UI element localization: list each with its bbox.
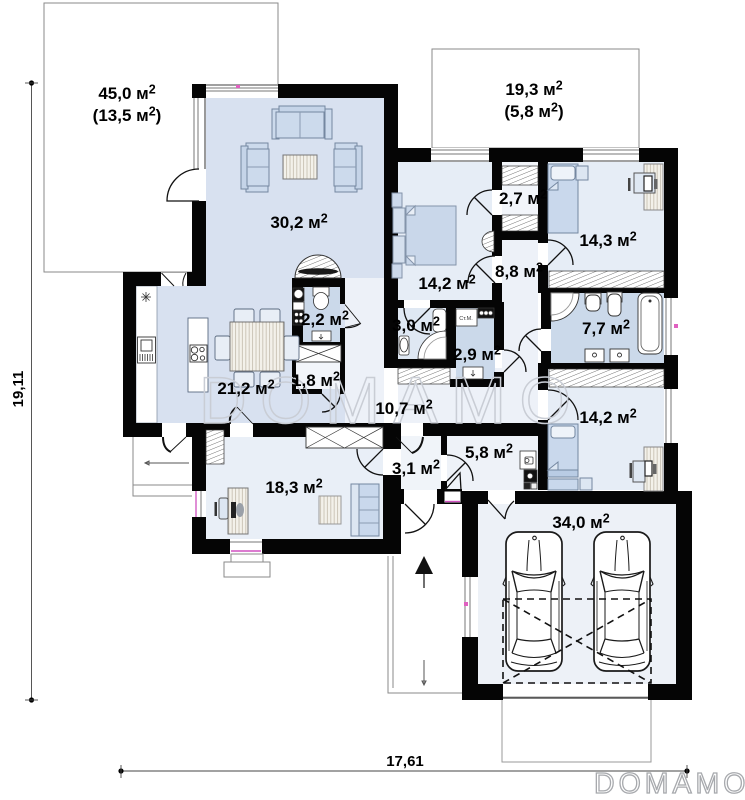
svg-text:19,11: 19,11 xyxy=(10,371,27,408)
svg-text:14,2 м2: 14,2 м2 xyxy=(579,407,636,428)
svg-text:DOMAMO: DOMAMO xyxy=(594,768,745,800)
svg-text:45,0 м2: 45,0 м2 xyxy=(98,83,155,104)
svg-text:30,2 м2: 30,2 м2 xyxy=(270,212,327,233)
svg-text:2,2 м2: 2,2 м2 xyxy=(301,309,349,330)
svg-text:10,7 м2: 10,7 м2 xyxy=(375,398,432,419)
svg-text:34,0 м2: 34,0 м2 xyxy=(552,512,609,533)
svg-text:2,9 м2: 2,9 м2 xyxy=(453,344,501,365)
svg-text:14,2 м2: 14,2 м2 xyxy=(418,273,475,294)
svg-text:19,3 м2: 19,3 м2 xyxy=(505,79,562,100)
svg-text:Ст.М.: Ст.М. xyxy=(459,316,473,322)
svg-text:7,7 м2: 7,7 м2 xyxy=(582,318,630,339)
svg-text:8,8 м2: 8,8 м2 xyxy=(495,261,543,282)
svg-text:2,7 м2: 2,7 м2 xyxy=(499,188,547,209)
svg-text:17,61: 17,61 xyxy=(386,753,424,770)
svg-text:3,0 м2: 3,0 м2 xyxy=(392,315,440,336)
svg-text:3,1 м2: 3,1 м2 xyxy=(392,458,440,479)
svg-text:14,3 м2: 14,3 м2 xyxy=(579,230,636,251)
svg-text:1,8 м2: 1,8 м2 xyxy=(292,370,340,391)
svg-text:5,8 м2: 5,8 м2 xyxy=(465,442,513,463)
svg-text:18,3 м2: 18,3 м2 xyxy=(265,477,322,498)
svg-text:21,2 м2: 21,2 м2 xyxy=(217,378,274,399)
